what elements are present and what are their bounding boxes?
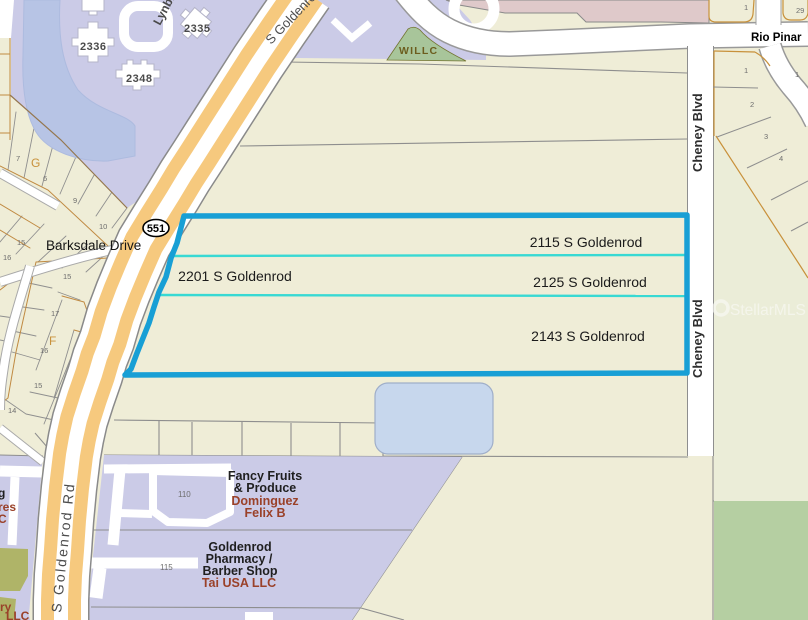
- svg-text:6: 6: [43, 174, 47, 183]
- svg-text:14: 14: [8, 406, 16, 415]
- svg-text:Tai USA LLC: Tai USA LLC: [202, 576, 276, 590]
- svg-text:110: 110: [178, 490, 191, 499]
- svg-text:g: g: [0, 486, 5, 500]
- svg-text:2: 2: [750, 100, 754, 109]
- svg-text:115: 115: [160, 563, 173, 572]
- svg-text:4: 4: [779, 154, 783, 163]
- svg-text:WILLC: WILLC: [399, 45, 438, 57]
- svg-text:551: 551: [147, 223, 165, 235]
- svg-text:LLC: LLC: [6, 609, 30, 620]
- svg-text:2335: 2335: [184, 23, 210, 35]
- svg-text:Cheney Blvd: Cheney Blvd: [690, 93, 705, 172]
- svg-text:2201 S Goldenrod: 2201 S Goldenrod: [178, 268, 292, 284]
- svg-text:17: 17: [51, 309, 59, 318]
- svg-text:Cheney Blvd: Cheney Blvd: [690, 299, 705, 378]
- svg-text:Rio Pinar: Rio Pinar: [751, 32, 802, 44]
- svg-text:& Produce: & Produce: [234, 481, 297, 495]
- svg-text:StellarMLS: StellarMLS: [730, 302, 806, 319]
- svg-text:Barksdale Drive: Barksdale Drive: [46, 238, 141, 253]
- svg-text:7: 7: [16, 154, 20, 163]
- svg-text:F: F: [49, 334, 56, 348]
- svg-text:15: 15: [17, 238, 25, 247]
- svg-text:2336: 2336: [80, 41, 106, 53]
- svg-text:1: 1: [744, 3, 748, 12]
- svg-text:15: 15: [34, 381, 42, 390]
- svg-text:G: G: [31, 156, 40, 170]
- svg-text:1: 1: [744, 66, 748, 75]
- svg-text:Felix B: Felix B: [245, 506, 286, 520]
- svg-text:9: 9: [73, 196, 77, 205]
- svg-text:1: 1: [795, 70, 799, 79]
- svg-text:16: 16: [3, 253, 11, 262]
- svg-text:29: 29: [796, 6, 804, 15]
- svg-text:2348: 2348: [126, 73, 152, 85]
- svg-text:2125 S Goldenrod: 2125 S Goldenrod: [533, 274, 647, 290]
- svg-text:10: 10: [99, 222, 107, 231]
- svg-text:C: C: [0, 512, 7, 526]
- svg-text:2115 S Goldenrod: 2115 S Goldenrod: [530, 234, 643, 250]
- svg-text:3: 3: [764, 132, 768, 141]
- svg-text:15: 15: [63, 272, 71, 281]
- svg-text:2143 S Goldenrod: 2143 S Goldenrod: [531, 328, 645, 344]
- svg-text:16: 16: [40, 346, 48, 355]
